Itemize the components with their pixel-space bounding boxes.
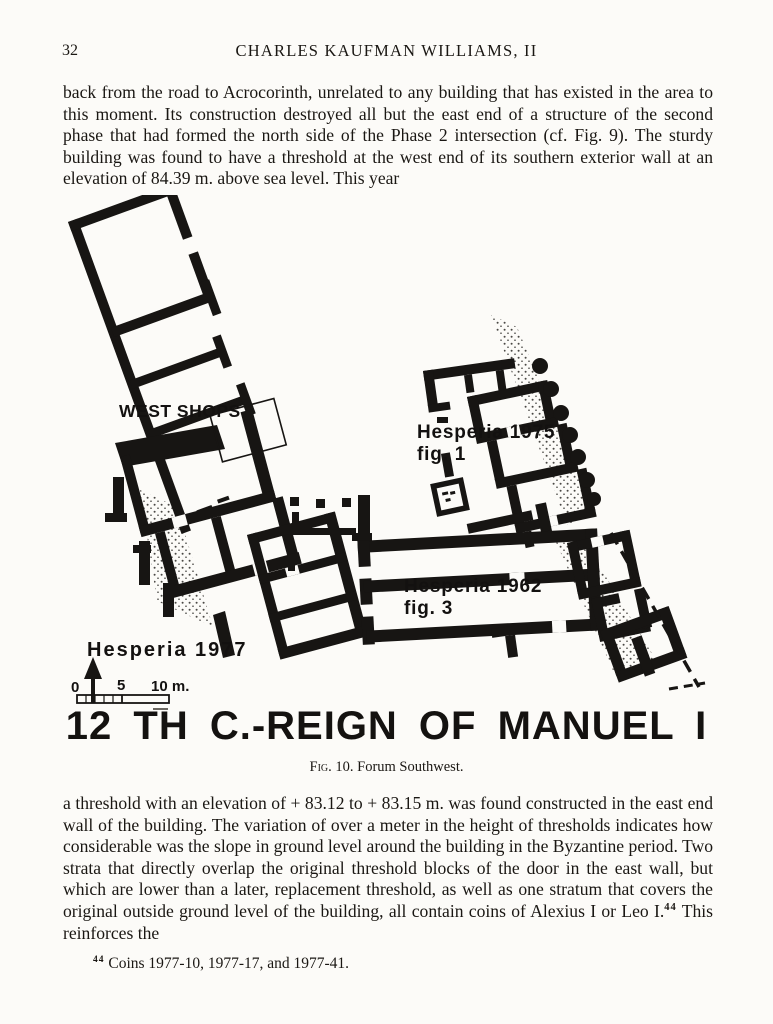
footnote-number: 44 [93,955,105,965]
figure-caption-label: Fig. 10. [310,759,354,775]
paragraph-bottom: a threshold with an elevation of + 83.12… [63,793,713,944]
west-shops-label: WEST SHOPS [119,401,241,421]
hesperia-1975-label: Hesperia 1975 [417,422,555,443]
paragraph-top: back from the road to Acrocorinth, unrel… [63,82,713,190]
document-page: 32 CHARLES KAUFMAN WILLIAMS, II back fro… [0,0,773,1024]
hesperia-1977-label: Hesperia 1977 [87,639,248,661]
north-arrow [84,657,102,703]
footnote-text: Coins 1977-10, 1977-17, and 1977-41. [108,955,349,972]
hesperia-1962-label: Hesperia 1962 [404,576,542,597]
figure-caption-text: Forum Southwest. [357,759,463,775]
footnote: 44 Coins 1977-10, 1977-17, and 1977-41. [63,955,713,973]
scale-label-five: 5 [117,677,125,694]
paragraph-bottom-text: a threshold with an elevation of + 83.12… [63,793,713,921]
footnote-reference: 44 [664,902,677,913]
west-shops-building [68,195,288,534]
figure-title: 12 TH C.-REIGN OF MANUEL I [0,704,773,749]
hesperia-1962-fig-label: fig. 3 [404,598,453,619]
hatched-square-feature [433,480,466,513]
site-plan-figure: 0 5 10 m. WEST SHOPS Hesperia 1975 fig. … [55,195,735,717]
figure-caption: Fig. 10. Forum Southwest. [0,759,773,776]
scale-label-ten: 10 m. [151,678,189,695]
hesperia-1975-fig-label: fig. 1 [417,444,466,465]
scale-label-zero: 0 [71,679,79,696]
plan-walls [68,195,687,683]
t-shaped-wall-fragment [491,624,531,660]
running-head: CHARLES KAUFMAN WILLIAMS, II [0,41,773,61]
